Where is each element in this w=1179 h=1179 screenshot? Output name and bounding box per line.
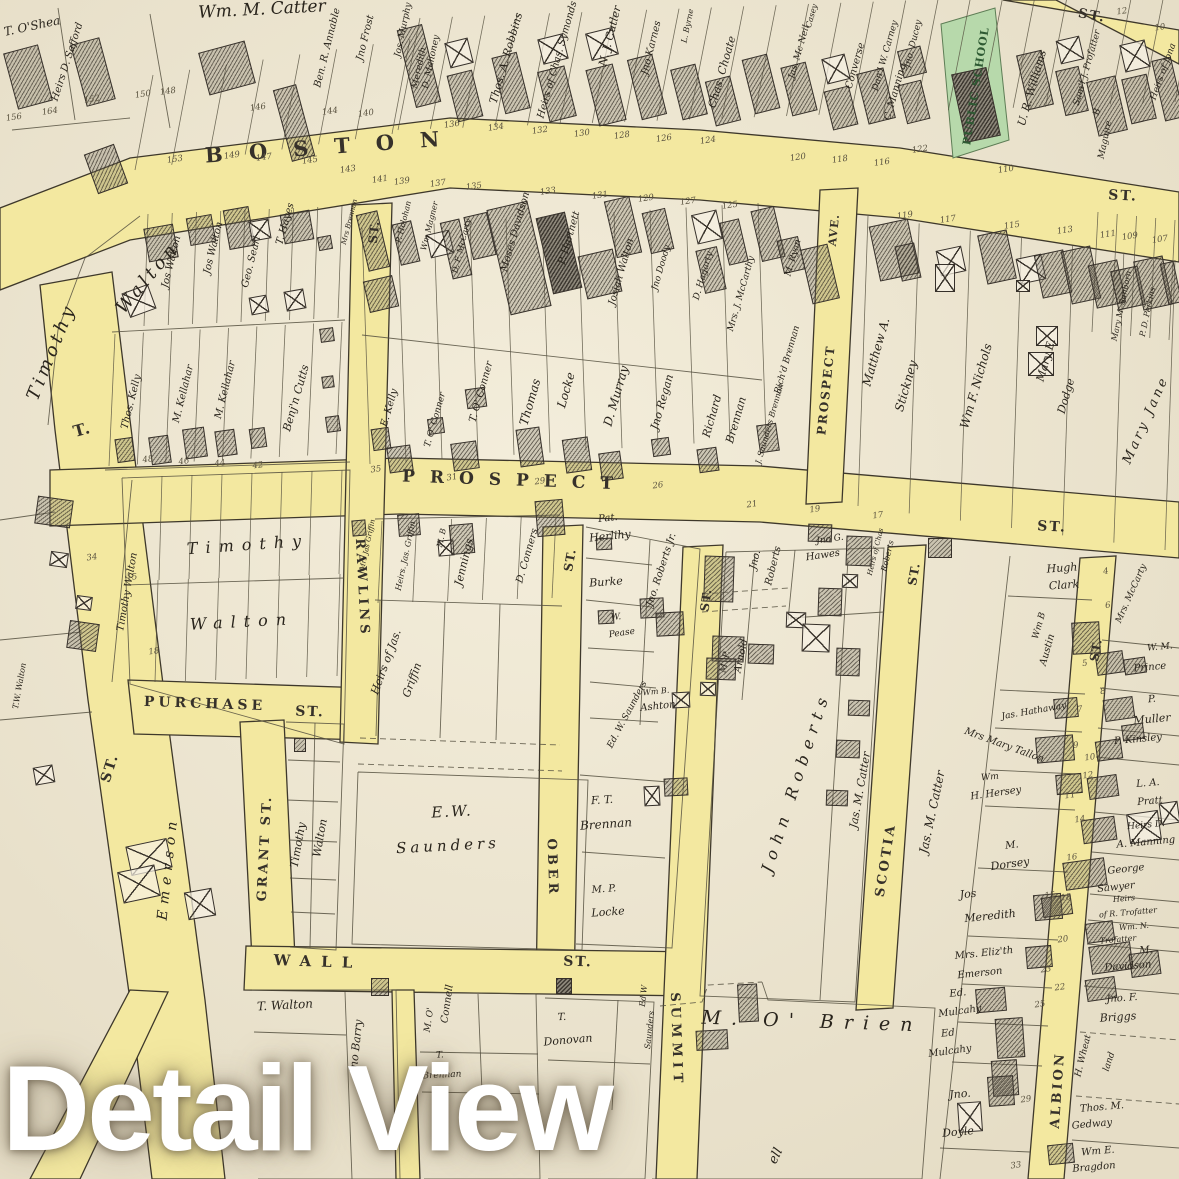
building-footprint — [818, 588, 843, 617]
parcel-line — [1090, 894, 1179, 902]
building-footprint — [706, 657, 737, 680]
building-footprint — [186, 214, 216, 246]
lot-boundary — [279, 325, 285, 457]
parcel-line — [580, 775, 668, 782]
parcel-line — [1092, 852, 1179, 860]
parcel-line — [440, 602, 445, 738]
parcel-line — [788, 550, 795, 620]
building-footprint — [987, 1075, 1015, 1107]
building-outline-crossed — [802, 624, 831, 653]
building-footprint — [651, 437, 671, 457]
parcel-line — [362, 335, 762, 380]
building-footprint — [1085, 920, 1116, 944]
parcel-line — [291, 912, 335, 914]
building-footprint — [34, 496, 74, 529]
lot-boundary — [246, 577, 249, 679]
building-footprint — [317, 235, 333, 251]
building-footprint — [534, 499, 565, 537]
lot-boundary — [307, 575, 310, 677]
parcel-line — [586, 558, 652, 565]
building-footprint — [1041, 894, 1073, 918]
building-footprint — [655, 611, 684, 636]
building-outline-crossed — [248, 218, 271, 241]
parcel-line — [290, 878, 336, 880]
lot-boundary — [336, 322, 342, 454]
building-footprint — [294, 738, 306, 752]
parcel-line — [968, 936, 1058, 940]
building-outline-crossed — [1036, 326, 1058, 346]
parcel-line — [58, 8, 75, 120]
building-outline-crossed — [957, 1101, 983, 1133]
building-outline-crossed — [75, 595, 93, 611]
building-footprint — [371, 978, 389, 996]
building-footprint — [427, 417, 445, 435]
building-outline-crossed — [33, 764, 56, 785]
parcel-line-dashed — [358, 764, 562, 771]
building-footprint — [808, 524, 833, 543]
building-outline-crossed — [1126, 810, 1162, 844]
lot-boundary — [517, 517, 521, 599]
building-outline-crossed — [842, 574, 858, 589]
lot-boundary — [578, 214, 586, 450]
lot-boundary — [960, 231, 970, 521]
building-outline-crossed — [1028, 352, 1054, 376]
building-footprint — [556, 978, 572, 994]
building-footprint — [598, 451, 624, 482]
building-footprint — [351, 519, 366, 536]
parcel-line-dashed — [360, 738, 560, 745]
building-footprint — [836, 648, 861, 677]
lot-boundary — [314, 207, 318, 319]
building-footprint — [756, 423, 780, 454]
parcel-line — [286, 722, 344, 950]
lot-boundary — [308, 324, 314, 456]
parcel-line — [940, 1148, 1030, 1152]
parcel-line — [590, 718, 658, 722]
road — [536, 525, 583, 994]
building-footprint — [995, 1017, 1026, 1059]
building-footprint — [1121, 723, 1145, 742]
building-footprint — [1071, 621, 1101, 654]
building-footprint — [1128, 950, 1161, 978]
road — [856, 545, 926, 1010]
lot-boundary — [319, 49, 337, 144]
building-footprint — [737, 984, 759, 1023]
building-footprint — [1087, 774, 1120, 800]
building-footprint — [319, 327, 335, 343]
building-footprint — [1035, 734, 1075, 763]
building-footprint — [321, 375, 335, 389]
parcel-line — [1102, 640, 1179, 648]
building-footprint — [1062, 857, 1107, 891]
parcel-line — [1072, 1140, 1179, 1148]
building-footprint — [465, 387, 488, 410]
building-footprint — [143, 224, 178, 263]
lot-boundary — [338, 206, 342, 318]
building-footprint — [249, 427, 268, 449]
lot-boundary — [276, 576, 279, 678]
lot-boundary — [337, 574, 340, 676]
building-footprint — [1025, 945, 1053, 969]
parcel-line — [742, 553, 755, 700]
building-footprint — [1053, 697, 1079, 719]
building-footprint — [450, 440, 480, 471]
parcel-line — [150, 14, 170, 128]
building-footprint — [182, 427, 208, 460]
building-footprint — [845, 536, 872, 567]
building-outline-crossed — [283, 288, 306, 311]
building-footprint — [664, 777, 689, 796]
road — [244, 946, 700, 996]
lot-boundary — [216, 578, 219, 680]
building-footprint — [598, 610, 615, 625]
road — [240, 720, 295, 960]
parcel-line — [254, 1032, 346, 1035]
watermark: Detail View — [2, 1038, 611, 1178]
building-outline-crossed — [49, 551, 69, 568]
parcel-line — [962, 984, 1052, 988]
parcel-line — [496, 604, 500, 740]
building-footprint — [66, 620, 100, 652]
building-footprint — [386, 444, 413, 473]
building-footprint — [214, 429, 237, 458]
parcel-line — [1100, 688, 1179, 696]
parcel-line — [310, 723, 315, 948]
building-footprint — [148, 435, 172, 466]
building-footprint — [836, 740, 861, 759]
building-footprint — [449, 523, 476, 555]
lot-boundary — [858, 216, 868, 506]
building-footprint — [928, 538, 952, 558]
building-outline-crossed — [672, 692, 691, 709]
atlas-map-canvas: BOSTONST.ST.T.ST.PROSPECTST.PURCHASEST.R… — [0, 0, 1179, 1179]
parcel-line — [287, 800, 338, 802]
building-footprint — [562, 436, 592, 473]
lot-boundary — [355, 44, 373, 139]
building-footprint — [325, 415, 341, 433]
lot-boundary — [185, 579, 188, 681]
building-footprint — [1047, 1143, 1075, 1166]
building-footprint — [703, 555, 735, 602]
building-footprint — [748, 644, 775, 665]
parcel-line — [582, 852, 665, 858]
road — [806, 188, 858, 504]
parcel-line — [640, 540, 650, 725]
building-footprint — [848, 700, 871, 717]
lot-boundary — [217, 211, 221, 323]
building-footprint — [280, 210, 315, 245]
parcel-line-dashed — [1080, 1032, 1179, 1040]
parcel-line — [612, 1000, 618, 1110]
building-footprint — [695, 1029, 728, 1051]
parcel-line — [12, 118, 130, 130]
parcel-line-dashed — [1076, 1096, 1179, 1104]
building-footprint — [596, 538, 613, 551]
lot-boundary — [482, 518, 486, 600]
building-footprint — [1095, 650, 1126, 676]
parcel-line — [0, 712, 92, 720]
building-outline-crossed — [643, 786, 660, 807]
building-footprint — [515, 427, 544, 468]
building-footprint — [1080, 816, 1117, 844]
building-outline-crossed — [700, 682, 716, 697]
building-footprint — [696, 447, 719, 474]
building-footprint — [826, 790, 849, 807]
building-outline-crossed — [249, 295, 270, 316]
building-footprint — [1103, 696, 1136, 722]
parcel-line — [375, 600, 562, 606]
building-footprint — [1095, 738, 1124, 761]
building-outline-crossed — [1159, 801, 1179, 825]
building-footprint — [975, 987, 1007, 1014]
building-footprint — [1055, 773, 1083, 795]
building-outline-crossed — [935, 264, 955, 292]
lot-boundary — [137, 333, 143, 465]
building-footprint — [1085, 976, 1118, 1002]
building-outline-crossed — [184, 888, 216, 920]
parcel-line — [590, 682, 656, 688]
building-footprint — [114, 437, 135, 463]
building-footprint — [1123, 657, 1147, 676]
building-footprint — [1088, 941, 1133, 975]
building-outline-crossed — [1016, 280, 1030, 292]
building-footprint — [397, 513, 421, 537]
lot-boundary — [686, 208, 694, 444]
parcel-line — [289, 840, 337, 842]
